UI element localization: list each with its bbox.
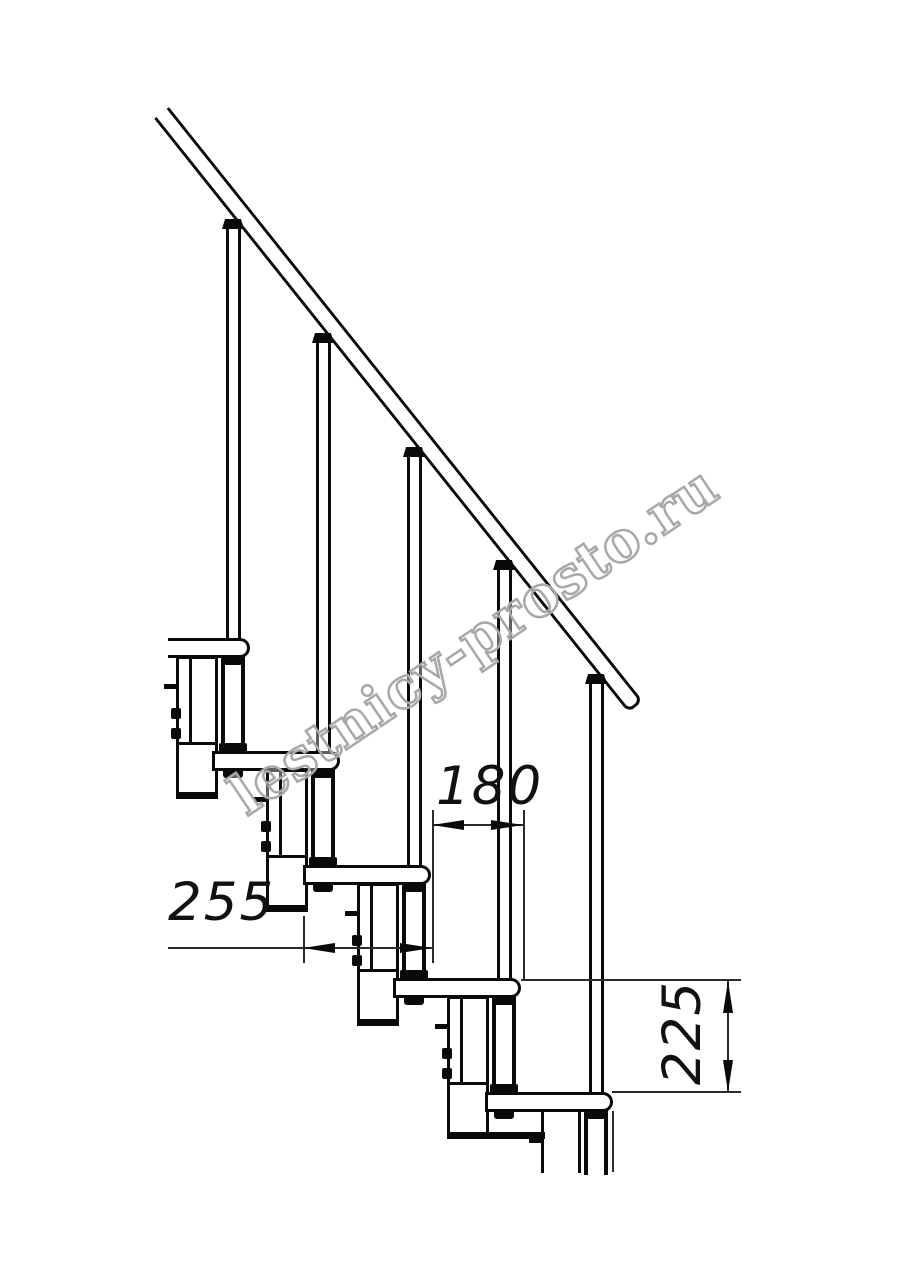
baluster [589, 682, 604, 1092]
tread-bolt-nut [494, 997, 514, 1005]
tread [168, 638, 250, 658]
module-bolt [171, 708, 181, 719]
dimension-arrow [723, 1060, 733, 1092]
dimension-arrow [400, 943, 432, 953]
rod-bolt-nut [313, 884, 333, 892]
tread [485, 1092, 613, 1112]
support-module [357, 883, 399, 1026]
module-joint-line [179, 742, 215, 745]
baluster-rail-mount [403, 447, 425, 457]
rod-bolt-nut [494, 1111, 514, 1119]
dimension-tread-depth-label: 255 [168, 872, 275, 933]
dimension-going-label: 180 [436, 756, 543, 817]
connector-rod [402, 881, 426, 978]
extension-line [523, 810, 525, 980]
module-inner-line [189, 656, 192, 742]
module-bolt [352, 935, 362, 946]
rod-foot [490, 1084, 518, 1093]
tread-bolt-nut [586, 1111, 606, 1119]
tread [393, 978, 521, 998]
support-module [541, 1110, 581, 1173]
dimension-rise-label: 225 [652, 974, 713, 1092]
extension-line [303, 916, 305, 963]
tread-bolt-nut [404, 884, 424, 892]
support-module [176, 656, 218, 799]
module-tab [529, 1138, 542, 1143]
module-bolt [171, 728, 181, 739]
module-joint-line [269, 855, 305, 858]
support-module [447, 996, 489, 1139]
dimension-arrow [491, 820, 523, 830]
module-bolt [352, 955, 362, 966]
rod-bolt-nut [404, 997, 424, 1005]
module-tab [345, 911, 358, 916]
dimension-arrow [432, 820, 464, 830]
baluster-rail-mount [585, 674, 607, 684]
extension-line [612, 1111, 614, 1172]
rod-foot [400, 970, 428, 979]
module-tab [435, 1024, 448, 1029]
dimension-arrow [303, 943, 335, 953]
module-tab [164, 684, 177, 689]
extension-line [432, 810, 434, 963]
tread [303, 865, 431, 885]
dimension-line [168, 947, 432, 949]
module-bolt [442, 1048, 452, 1059]
baluster-rail-mount [312, 333, 334, 343]
module-joint-line [360, 969, 396, 972]
module-inner-line [370, 883, 373, 969]
staircase-technical-drawing: 255 180 225 lestnicy-prosto.ru [0, 0, 914, 1280]
baluster [226, 227, 241, 638]
connector-rod [492, 994, 516, 1092]
baluster-rail-mount [222, 219, 244, 229]
module-bolt [442, 1068, 452, 1079]
module-joint-line [450, 1082, 486, 1085]
module-inner-line [460, 996, 463, 1082]
tread-bolt-nut [223, 657, 243, 665]
module-bolt [261, 841, 271, 852]
dimension-arrow [723, 981, 733, 1013]
rod-foot [309, 857, 337, 866]
